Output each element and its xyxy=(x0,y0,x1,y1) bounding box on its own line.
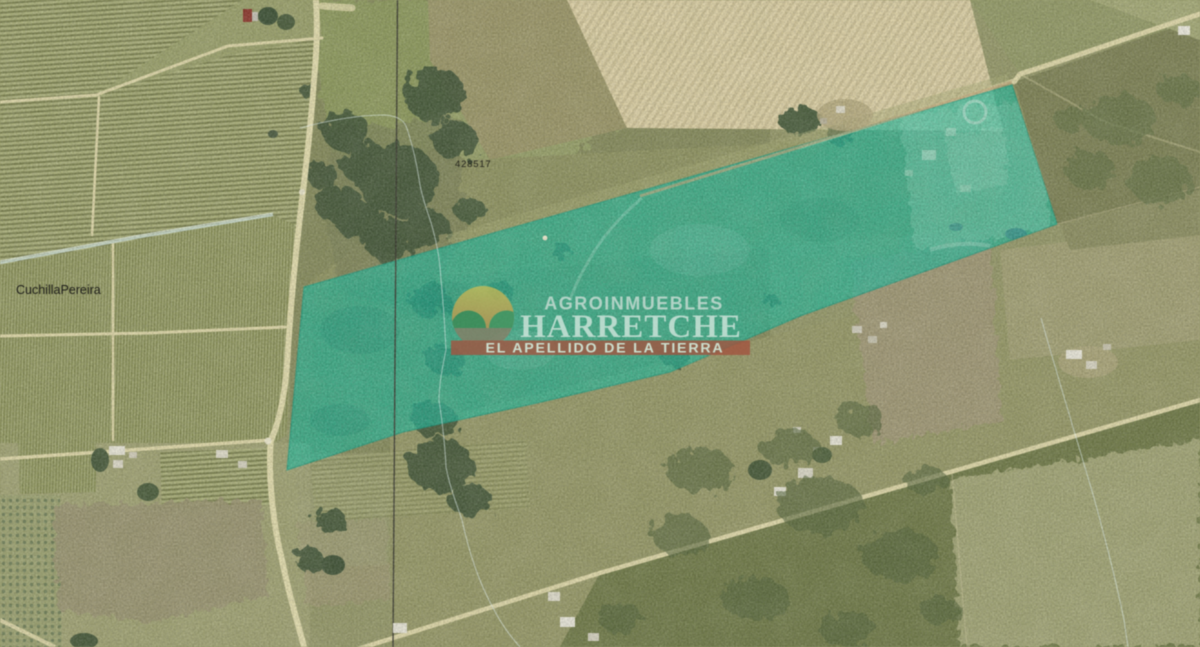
svg-text:CuchillaPereira: CuchillaPereira xyxy=(16,283,101,297)
svg-text:EL APELLIDO DE LA TIERRA: EL APELLIDO DE LA TIERRA xyxy=(486,341,725,357)
svg-text:428517: 428517 xyxy=(455,159,492,170)
